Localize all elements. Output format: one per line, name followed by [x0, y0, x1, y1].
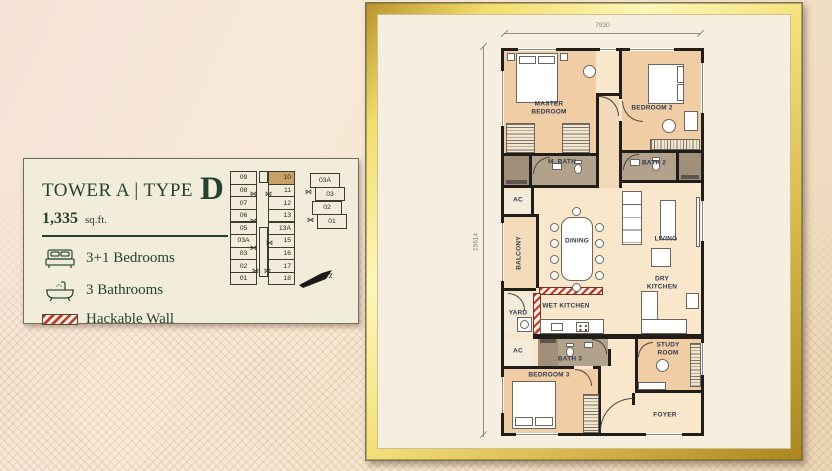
- hackable-wall-icon: [42, 314, 78, 325]
- window: [701, 201, 704, 241]
- nightstand: [507, 53, 515, 61]
- tower-type-prefix: TOWER A | TYPE: [42, 180, 193, 201]
- key-plan: 090807060503A030201 1011121313A15161718 …: [228, 169, 356, 317]
- stair-icon: [266, 240, 273, 247]
- basin: [584, 342, 593, 348]
- wall: [676, 153, 679, 180]
- bed-icon: [42, 247, 78, 269]
- wall: [608, 349, 611, 366]
- keyplan-cell: 01: [317, 214, 347, 229]
- kitchen-counter: [540, 319, 604, 334]
- hackable-wall-horizontal: [539, 287, 603, 295]
- chair: [583, 65, 596, 78]
- keyplan-cell: 03: [315, 187, 345, 202]
- dining-chair: [595, 223, 604, 232]
- window: [600, 48, 616, 51]
- wall: [504, 366, 574, 369]
- room-label-dining: DINING: [565, 237, 589, 245]
- keyplan-cell: 16: [268, 247, 295, 261]
- wardrobe: [562, 123, 590, 153]
- dining-chair: [550, 271, 559, 280]
- desk: [690, 343, 701, 387]
- area-value: 1,335: [42, 210, 78, 227]
- wall: [608, 334, 701, 339]
- stair-icon: [265, 191, 272, 198]
- dining-chair: [550, 223, 559, 232]
- room-label-dry-kitchen: DRY KITCHEN: [643, 276, 682, 291]
- wall: [531, 188, 534, 217]
- keyplan-cell: 13A: [268, 222, 295, 236]
- shelf: [684, 111, 698, 131]
- wardrobe: [583, 394, 599, 433]
- dining-chair: [550, 239, 559, 248]
- unit-info-card: TOWER A | TYPE D 1,335 sq.ft.: [23, 158, 359, 324]
- feature-list: 3+1 Bedrooms 3 Bathrooms: [42, 247, 227, 328]
- wall: [504, 214, 539, 217]
- vent-grille: [506, 180, 527, 184]
- room-label-bath-3: BATH 3: [558, 355, 582, 363]
- pillow: [677, 84, 684, 101]
- window: [516, 433, 558, 436]
- stair-icon: [250, 191, 257, 198]
- dining-chair: [595, 239, 604, 248]
- room-label-ac-upper: AC: [513, 196, 523, 204]
- stair-icon: [250, 218, 257, 225]
- washing-machine-drum: [520, 320, 529, 329]
- keyplan-cell: 18: [268, 272, 295, 286]
- window: [501, 71, 504, 126]
- keyplan-cell: 11: [268, 184, 295, 198]
- area-unit: sq.ft.: [85, 214, 107, 226]
- room-label-bedroom-3: BEDROOM 3: [528, 371, 569, 379]
- pillow: [677, 66, 684, 83]
- wardrobe: [650, 139, 700, 150]
- room-label-bedroom-2: BEDROOM 2: [631, 104, 672, 112]
- keyplan-cell: 12: [268, 196, 295, 210]
- door-arc-foyer-entrance: [600, 398, 633, 431]
- lift-shaft: [259, 171, 268, 183]
- wall: [504, 185, 599, 188]
- stair-icon: [252, 268, 259, 275]
- wall: [536, 214, 539, 288]
- dining-chair: [595, 255, 604, 264]
- dining-table: [561, 217, 593, 281]
- coffee-table: [660, 200, 676, 240]
- window: [501, 377, 504, 413]
- keyplan-right-column: 1011121313A15161718: [268, 172, 295, 285]
- unit-info-text: TOWER A | TYPE D 1,335 sq.ft.: [42, 171, 227, 337]
- wall: [504, 288, 536, 291]
- keyplan-cell: 03A: [310, 173, 340, 188]
- type-letter: D: [200, 171, 224, 207]
- wall: [619, 180, 701, 183]
- armchair: [651, 248, 671, 267]
- vent-grille: [540, 339, 556, 343]
- unit-title: TOWER A | TYPE D: [42, 171, 227, 208]
- dining-chair: [572, 207, 581, 216]
- bath-3-shower: [538, 339, 558, 366]
- tv-console: [696, 197, 700, 247]
- sofa: [622, 191, 642, 245]
- dining-chair: [550, 255, 559, 264]
- chair: [656, 359, 669, 372]
- dining-chair: [595, 271, 604, 280]
- pillow: [515, 417, 533, 426]
- nightstand: [560, 53, 568, 61]
- keyplan-cell: 09: [230, 171, 257, 185]
- feature-label: 3+1 Bedrooms: [86, 250, 175, 267]
- room-label-m-bath: M. BATH: [548, 158, 576, 166]
- gold-picture-frame: MASTER BEDROOM BEDROOM 2 M. BATH BATH 2 …: [365, 2, 803, 461]
- wall: [619, 150, 701, 153]
- entrance-opening: [646, 433, 682, 436]
- feature-bedrooms: 3+1 Bedrooms: [42, 247, 227, 269]
- window: [630, 48, 674, 51]
- keyplan-cell: 13: [268, 209, 295, 223]
- dining-chair: [572, 283, 581, 292]
- stair-icon: [307, 217, 314, 224]
- pillow: [519, 56, 536, 64]
- dimension-left: 15614: [479, 51, 489, 433]
- floor-plan: MASTER BEDROOM BEDROOM 2 M. BATH BATH 2 …: [504, 51, 701, 433]
- basin: [630, 159, 640, 166]
- sink: [551, 323, 563, 331]
- kitchen-counter: [641, 319, 687, 334]
- keyplan-cell: 10: [268, 171, 295, 185]
- feature-hackable-wall: Hackable Wall: [42, 311, 227, 328]
- room-label-wet-kitchen: WET KITCHEN: [542, 302, 589, 310]
- chair: [662, 119, 676, 133]
- room-label-study-room: STUDY ROOM: [656, 342, 679, 357]
- keyplan-cell: 17: [268, 259, 295, 273]
- shoe-cabinet: [638, 382, 666, 390]
- room-label-foyer: FOYER: [653, 411, 676, 419]
- room-label-bath-2: BATH 2: [642, 159, 666, 167]
- bathtub-icon: [42, 278, 78, 302]
- stove: [576, 322, 589, 332]
- wall: [529, 156, 532, 185]
- fridge: [686, 293, 699, 309]
- feature-label: Hackable Wall: [86, 311, 174, 328]
- wall: [619, 51, 622, 99]
- north-arrow-icon: z: [298, 269, 338, 296]
- keyplan-cell: 02: [312, 201, 342, 216]
- wall: [504, 153, 599, 156]
- wall: [619, 121, 622, 188]
- dimension-top: 7930: [504, 28, 701, 38]
- balcony-railing: [501, 223, 504, 281]
- svg-text:z: z: [328, 270, 333, 280]
- brochure-page: TOWER A | TYPE D 1,335 sq.ft.: [0, 0, 832, 471]
- feature-bathrooms: 3 Bathrooms: [42, 278, 227, 302]
- pillow: [535, 417, 553, 426]
- stair-icon: [264, 268, 271, 275]
- room-label-balcony: BALCONY: [515, 236, 523, 270]
- room-label-master-bedroom: MASTER BEDROOM: [531, 101, 566, 116]
- dimension-top-value: 7930: [595, 22, 609, 29]
- keyplan-cell: 07: [230, 196, 257, 210]
- keyplan-annex-column: 03A030201: [310, 174, 347, 229]
- room-label-living: LIVING: [655, 235, 678, 243]
- room-label-yard: YARD: [509, 309, 528, 317]
- plan-panel: MASTER BEDROOM BEDROOM 2 M. BATH BATH 2 …: [377, 14, 791, 449]
- window: [701, 343, 704, 375]
- vent-grille: [681, 175, 699, 179]
- wardrobe: [506, 123, 535, 153]
- dimension-left-value: 15614: [473, 233, 480, 251]
- divider: [42, 235, 228, 237]
- window: [701, 63, 704, 113]
- unit-area: 1,335 sq.ft.: [42, 210, 227, 228]
- window: [518, 48, 556, 51]
- stair-icon: [250, 245, 257, 252]
- feature-label: 3 Bathrooms: [86, 282, 163, 299]
- wall: [635, 390, 701, 393]
- pillow: [538, 56, 555, 64]
- room-label-ac-lower: AC: [513, 347, 523, 355]
- stair-icon: [305, 189, 312, 196]
